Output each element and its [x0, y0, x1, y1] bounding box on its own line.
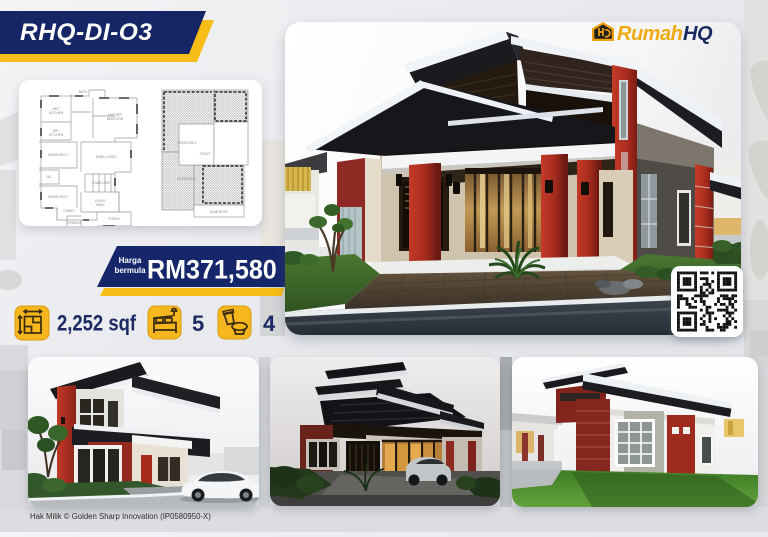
svg-text:FAMILY AREA: FAMILY AREA: [96, 155, 117, 159]
svg-text:Rumah: Rumah: [617, 23, 683, 45]
svg-text:BEDROOM 3: BEDROOM 3: [48, 195, 67, 199]
svg-text:KITCHEN: KITCHEN: [49, 133, 64, 137]
svg-text:PORCH: PORCH: [108, 217, 120, 221]
svg-text:AREA: AREA: [96, 203, 106, 207]
svg-text:bermula: bermula: [114, 266, 146, 275]
svg-text:HQ: HQ: [683, 23, 713, 45]
svg-text:RM371,580: RM371,580: [147, 254, 277, 285]
svg-text:WC: WC: [46, 175, 52, 179]
svg-text:BEDROOM 2: BEDROOM 2: [48, 153, 67, 157]
svg-text:4: 4: [263, 311, 276, 336]
svg-text:TOILET: TOILET: [199, 152, 210, 156]
svg-text:SLAB ROOF: SLAB ROOF: [210, 210, 228, 214]
svg-text:BEDROOM 3: BEDROOM 3: [177, 177, 196, 181]
svg-text:KITCHEN: KITCHEN: [49, 111, 64, 115]
svg-text:2,252 sqf: 2,252 sqf: [57, 312, 136, 336]
svg-text:BEDROOM 2: BEDROOM 2: [177, 141, 196, 145]
svg-text:5: 5: [192, 311, 204, 336]
svg-text:BATH: BATH: [79, 90, 88, 94]
svg-text:BEDROOM: BEDROOM: [107, 117, 124, 121]
svg-text:RHQ-DI-O3: RHQ-DI-O3: [20, 19, 152, 46]
svg-text:STAIRCASE: STAIRCASE: [92, 181, 110, 185]
svg-text:TERRACE: TERRACE: [66, 221, 81, 225]
svg-text:DINING: DINING: [63, 209, 75, 213]
svg-text:Harga: Harga: [119, 256, 142, 265]
